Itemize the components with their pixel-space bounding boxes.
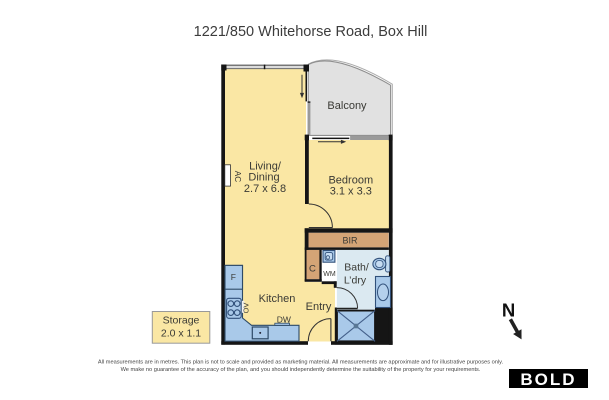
- svg-text:Dining: Dining: [248, 172, 279, 184]
- svg-text:OV: OV: [241, 303, 250, 314]
- svg-text:WM: WM: [323, 271, 336, 278]
- svg-text:2.7 x 6.8: 2.7 x 6.8: [244, 183, 286, 195]
- svg-text:3.1 x 3.3: 3.1 x 3.3: [330, 186, 372, 198]
- svg-text:1221/850 Whitehorse Road, Box: 1221/850 Whitehorse Road, Box Hill: [194, 24, 428, 40]
- svg-text:Bath/: Bath/: [344, 261, 369, 273]
- svg-text:F: F: [231, 272, 236, 282]
- svg-text:Entry: Entry: [306, 301, 332, 313]
- svg-text:AC: AC: [233, 171, 242, 182]
- svg-text:C: C: [309, 263, 316, 274]
- svg-text:BIR: BIR: [342, 235, 358, 245]
- svg-text:L’dry: L’dry: [344, 274, 367, 286]
- svg-text:Bedroom: Bedroom: [328, 174, 373, 186]
- svg-text:Storage: Storage: [163, 314, 200, 326]
- svg-text:DW: DW: [277, 314, 291, 324]
- svg-text:Balcony: Balcony: [327, 100, 367, 112]
- svg-text:Kitchen: Kitchen: [259, 293, 296, 305]
- svg-text:2.0 x 1.1: 2.0 x 1.1: [161, 327, 201, 339]
- svg-text:We make no guarantee of the ac: We make no guarantee of the accuracy of …: [121, 367, 481, 373]
- svg-text:All measurements are in metres: All measurements are in metres. This pla…: [98, 360, 504, 366]
- svg-text:Living/: Living/: [249, 160, 282, 172]
- svg-text:BOLD: BOLD: [520, 370, 576, 389]
- svg-text:N: N: [502, 299, 515, 320]
